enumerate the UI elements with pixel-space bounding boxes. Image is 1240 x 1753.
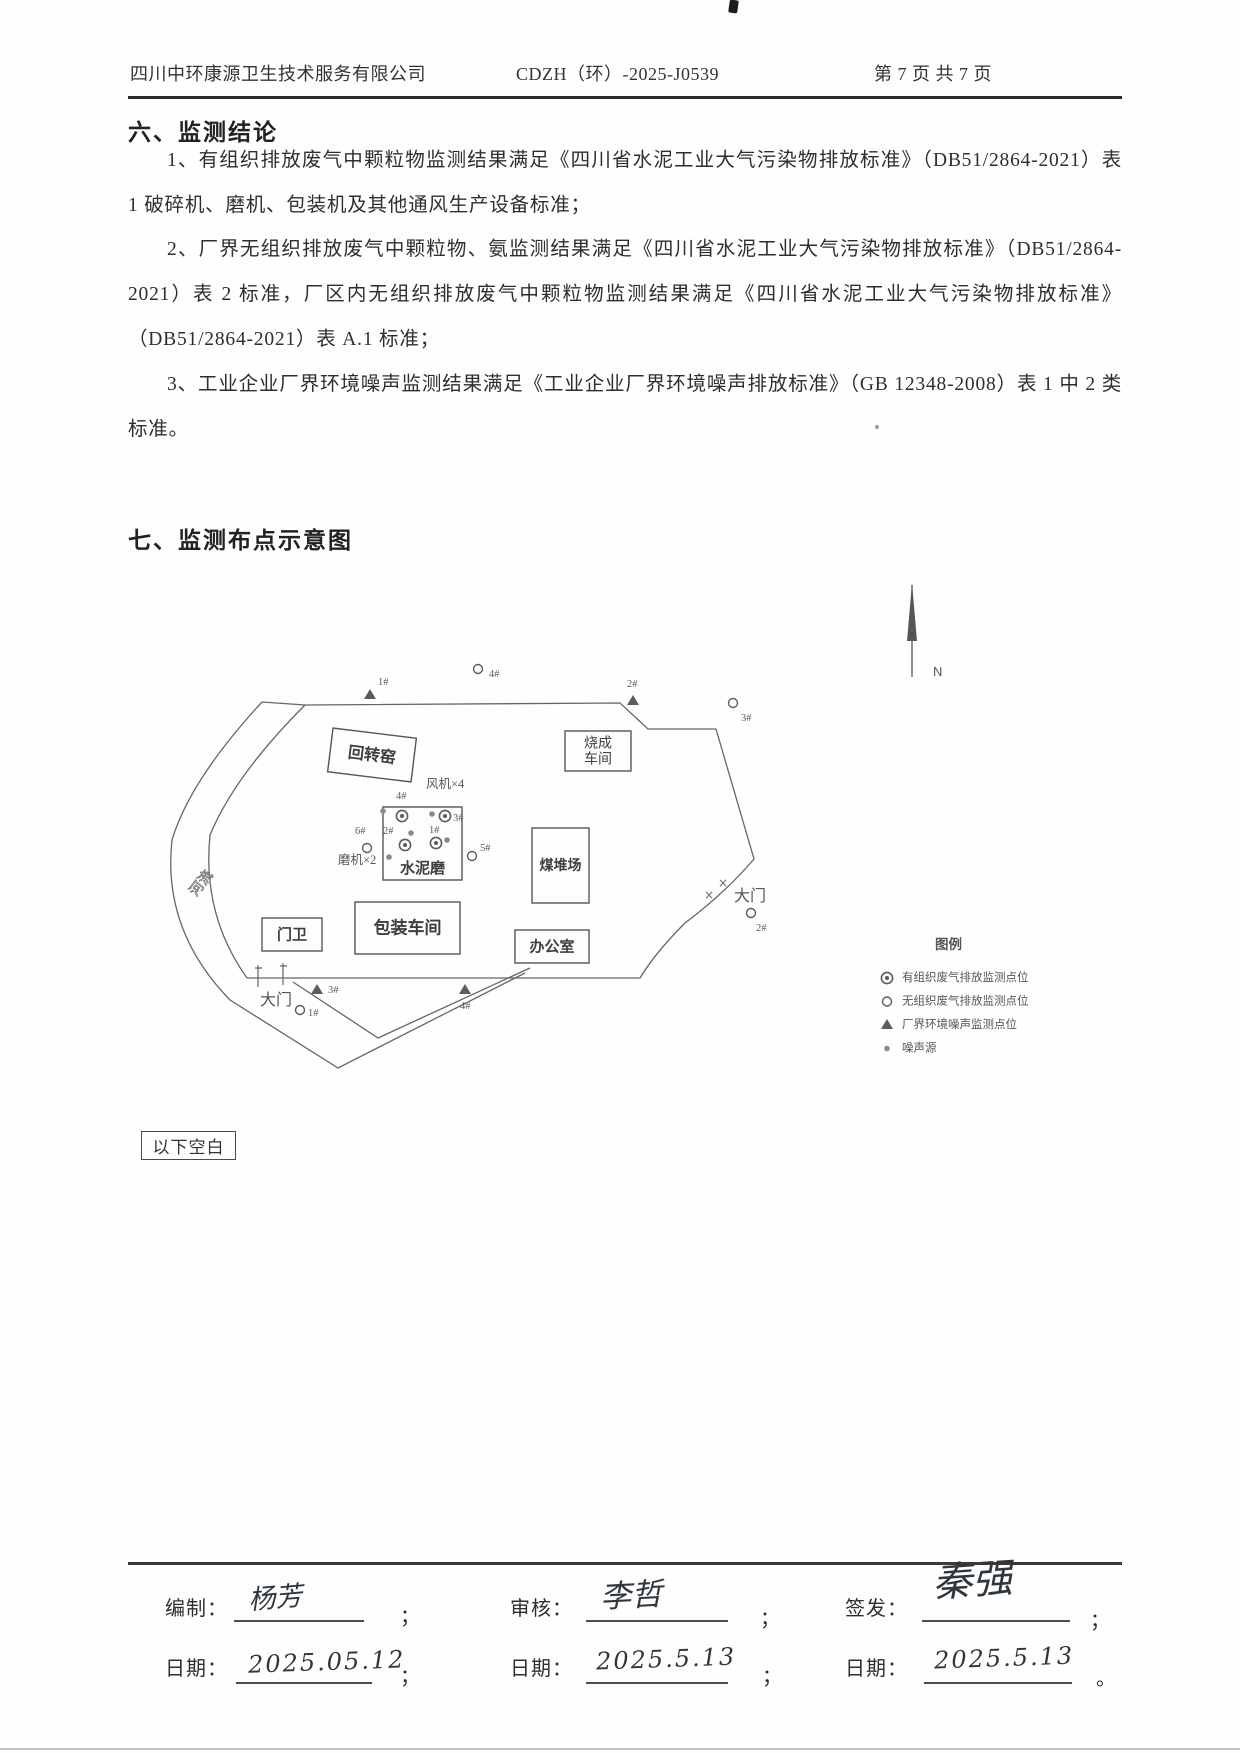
marker-label: 1# [378, 677, 389, 688]
svg-text:×: × [704, 888, 714, 902]
marker-tri [881, 1019, 893, 1029]
marker-tri [627, 695, 639, 705]
conclusion-paragraph-3: 3、工业企业厂界环境噪声监测结果满足《工业企业厂界环境噪声排放标准》（GB 12… [128, 362, 1122, 452]
building-office: 办公室 [515, 930, 589, 963]
building-label: 水泥磨 [400, 859, 446, 877]
marker-label: 2# [383, 826, 394, 837]
separator: 。 [1096, 1662, 1116, 1691]
legend-title: 图例 [935, 936, 962, 952]
mill-count-label: 磨机×2 [338, 853, 376, 867]
scan-artifact [875, 425, 879, 429]
date-value-1: 2025.05.12 [248, 1645, 406, 1678]
separator: ； [400, 1600, 420, 1629]
issued-signature: 秦强 [930, 1545, 1014, 1608]
building-label: 煤堆场 [540, 857, 582, 874]
diagram-dynamic-content: 回转窑烧成车间水泥磨煤堆场门卫包装车间办公室风机×4磨机×2河流大门大门图例1#… [187, 665, 1029, 1055]
separator: ； [1090, 1604, 1110, 1633]
legend-item-label: 有组织废气排放监测点位 [902, 970, 1029, 984]
legend-item-label: 噪声源 [902, 1041, 937, 1055]
header-company-name: 四川中环康源卫生技术服务有限公司 [130, 60, 426, 86]
marker-dot [444, 837, 450, 843]
north-label: N [933, 664, 942, 679]
building-rotary-kiln: 回转窑 [328, 728, 417, 782]
fan-count-label: 风机×4 [426, 777, 465, 791]
conclusion-paragraph-2: 2、厂界无组织排放废气中颗粒物、氨监测结果满足《四川省水泥工业大气污染物排放标准… [128, 227, 1122, 362]
marker-tri [311, 984, 323, 994]
date-line [924, 1682, 1072, 1684]
prepared-signature: 杨芳 [246, 1574, 303, 1618]
building-gate-house: 门卫 [262, 918, 322, 951]
marker-label: 2# [627, 679, 638, 690]
marker-circ [296, 1006, 305, 1015]
marker-label: 3# [453, 813, 464, 824]
building-coal-yard: 煤堆场 [532, 828, 589, 903]
date-label-3: 日期： [845, 1652, 908, 1681]
header-doc-number: CDZH（环）-2025-J0539 [516, 60, 719, 86]
plant-boundary [171, 702, 754, 1068]
marker-label: 2# [756, 923, 767, 934]
date-value-3: 2025.5.13 [934, 1642, 1075, 1675]
marker-dot [380, 808, 386, 814]
north-arrow-icon: N [907, 583, 942, 679]
below-blank-text: 以下空白 [153, 1133, 225, 1158]
building-label: 办公室 [529, 938, 574, 956]
legend-item-label: 无组织废气排放监测点位 [902, 994, 1029, 1008]
monitoring-points-site-diagram: ×× N 回转窑烧成车间水泥磨煤堆场门卫包装车间办公室风机×4磨机×2河流大门大… [150, 535, 1050, 1095]
marker-circ [363, 844, 372, 853]
svg-text:×: × [718, 876, 728, 890]
marker-label: 5# [480, 843, 491, 854]
separator: ； [400, 1660, 420, 1689]
marker-tri [364, 689, 376, 699]
marker-circ [883, 997, 892, 1006]
building-label: 车间 [584, 751, 612, 768]
conclusion-paragraph-1: 1、有组织排放废气中颗粒物监测结果满足《四川省水泥工业大气污染物排放标准》（DB… [128, 138, 1122, 228]
legend-item-label: 厂界环境噪声监测点位 [902, 1017, 1017, 1031]
scan-artifact [728, 0, 739, 14]
marker-label: 3# [741, 713, 752, 724]
building-label: 烧成 [584, 736, 612, 752]
building-packing-workshop: 包装车间 [355, 902, 460, 954]
date-label-2: 日期： [510, 1652, 573, 1681]
marker-label: 4# [460, 1001, 471, 1012]
marker-label: 4# [396, 791, 407, 802]
below-blank-box: 以下空白 [141, 1131, 236, 1160]
reviewed-label: 审核： [510, 1592, 573, 1621]
separator: ； [760, 1602, 780, 1631]
date-value-2: 2025.5.13 [596, 1643, 737, 1676]
date-line [586, 1682, 728, 1684]
separator: ； [762, 1660, 782, 1689]
signature-line [922, 1620, 1070, 1622]
gate-left-label: 大门 [260, 991, 292, 1009]
header-rule [128, 96, 1122, 99]
gate-left-posts-icon [255, 963, 287, 987]
date-line [236, 1682, 372, 1684]
signature-line [586, 1620, 728, 1622]
scan-artifact [0, 1748, 1240, 1750]
marker-dot [408, 830, 414, 836]
marker-label: 1# [308, 1008, 319, 1019]
marker-circ [747, 909, 756, 918]
marker-dot [429, 811, 435, 817]
marker-label: 3# [328, 985, 339, 996]
marker-dot [386, 854, 392, 860]
marker-label: 4# [489, 669, 500, 680]
building-label: 包装车间 [374, 918, 442, 938]
signature-line [234, 1620, 364, 1622]
date-label-1: 日期： [165, 1652, 228, 1681]
header-page-info: 第 7 页 共 7 页 [874, 60, 992, 86]
marker-label: 1# [429, 825, 440, 836]
marker-dbl [881, 972, 892, 983]
gate-right-label: 大门 [734, 887, 766, 905]
building-firing-workshop: 烧成车间 [565, 731, 631, 771]
prepared-label: 编制： [165, 1592, 228, 1621]
marker-circ [468, 852, 477, 861]
marker-label: 6# [355, 826, 366, 837]
marker-tri [459, 984, 471, 994]
issued-label: 签发： [845, 1592, 908, 1621]
reviewed-signature: 李哲 [599, 1568, 663, 1616]
marker-circ [729, 699, 738, 708]
building-label: 门卫 [277, 926, 307, 944]
marker-dot [884, 1046, 890, 1052]
marker-circ [474, 665, 483, 674]
scanned-report-page: { "header": { "company": "四川中环康源卫生技术服务有限… [0, 0, 1240, 1753]
